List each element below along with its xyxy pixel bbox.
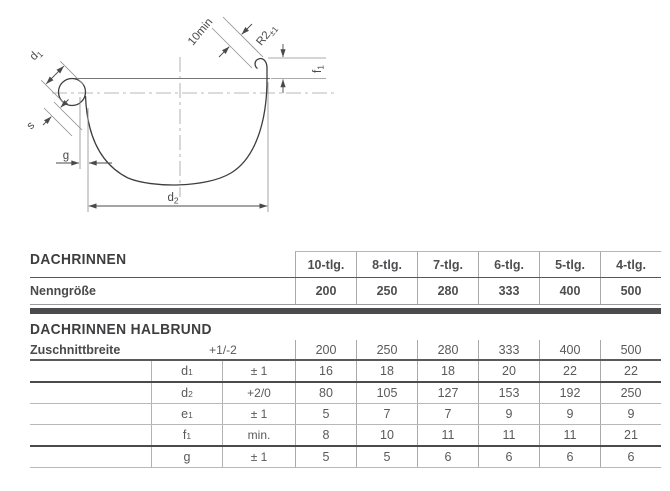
value-cell: 192 xyxy=(539,383,600,403)
table-row-g: g ± 1 5 5 6 6 6 6 xyxy=(30,447,661,468)
diagram-label-s: s xyxy=(25,119,38,132)
value-cell: 5 xyxy=(295,447,356,467)
value-cell: 8 xyxy=(295,425,356,445)
gutter-front-hook xyxy=(255,59,267,79)
value-cell: 20 xyxy=(478,361,539,381)
diagram-label-10min: 10min xyxy=(186,16,215,48)
diagram-label-d2: d2 xyxy=(167,192,178,206)
value-cell: 200 xyxy=(295,340,356,359)
dim-arrow-d1 xyxy=(46,75,55,84)
column-header: 10-tlg. xyxy=(295,251,356,277)
section-title-halbrund: DACHRINNEN HALBRUND xyxy=(30,321,212,338)
symbol-cell: d1 xyxy=(151,361,222,381)
gutter-trough-outline xyxy=(86,79,268,185)
diagram-label-r2: R2±1 xyxy=(254,22,280,49)
column-header: 4-tlg. xyxy=(600,251,661,277)
value-cell: 22 xyxy=(600,361,661,381)
value-cell: 250 xyxy=(600,383,661,403)
value-cell: 11 xyxy=(417,425,478,445)
value-cell: 7 xyxy=(356,404,417,424)
value-cell: 80 xyxy=(295,383,356,403)
value-cell: 280 xyxy=(417,340,478,359)
value-cell: 400 xyxy=(539,340,600,359)
section-divider-bar xyxy=(30,308,661,314)
value-cell: 5 xyxy=(295,404,356,424)
value-cell: 21 xyxy=(600,425,661,445)
dim-arrow-10min xyxy=(242,24,252,34)
table-row-e1: e1 ± 1 5 7 7 9 9 9 xyxy=(30,404,661,425)
value-cell: 6 xyxy=(478,447,539,467)
value-cell: 6 xyxy=(539,447,600,467)
symbol-cell: f1 xyxy=(151,425,222,445)
table-row-d2: d2 +2/0 80 105 127 153 192 250 xyxy=(30,383,661,404)
column-header: 6-tlg. xyxy=(478,251,539,277)
value-cell: 153 xyxy=(478,383,539,403)
dim-arrow-d1 xyxy=(55,66,64,75)
column-header: 8-tlg. xyxy=(356,251,417,277)
symbol-cell: d2 xyxy=(151,383,222,403)
tolerance-cell: ± 1 xyxy=(222,361,295,381)
value-cell: 5 xyxy=(356,447,417,467)
diagram-label-g: g xyxy=(63,150,69,162)
value-cell: 9 xyxy=(600,404,661,424)
extension-line xyxy=(212,28,252,68)
value-cell: 500 xyxy=(600,340,661,359)
value-cell: 280 xyxy=(417,278,478,304)
value-cell: 250 xyxy=(356,340,417,359)
datasheet-page: d1 s g d2 10min R2±1 f1 DACHRINNEN 10-tl… xyxy=(0,0,670,491)
value-cell: 400 xyxy=(539,278,600,304)
table-row-zuschnittbreite: Zuschnittbreite +1/-2 200 250 280 333 40… xyxy=(30,340,661,361)
value-cell: 10 xyxy=(356,425,417,445)
value-cell: 333 xyxy=(478,278,539,304)
value-cell: 7 xyxy=(417,404,478,424)
value-cell: 9 xyxy=(478,404,539,424)
value-cell: 18 xyxy=(417,361,478,381)
section-title-dachrinnen: DACHRINNEN xyxy=(30,251,126,268)
nominal-size-row: Nenngröße 200 250 280 333 400 500 xyxy=(30,278,661,305)
tolerance-cell: +2/0 xyxy=(222,383,295,403)
value-cell: 250 xyxy=(356,278,417,304)
extension-line xyxy=(44,108,72,136)
value-cell: 6 xyxy=(417,447,478,467)
row-label: Zuschnittbreite xyxy=(30,340,151,359)
value-cell: 6 xyxy=(600,447,661,467)
dimension-table: DACHRINNEN 10-tlg. 8-tlg. 7-tlg. 6-tlg. … xyxy=(30,251,661,468)
value-cell: 11 xyxy=(478,425,539,445)
value-cell: 333 xyxy=(478,340,539,359)
table-row-f1: f1 min. 8 10 11 11 11 21 xyxy=(30,425,661,447)
symbol-cell: g xyxy=(151,447,222,467)
value-cell: 500 xyxy=(600,278,661,304)
diagram-label-f1: f1 xyxy=(312,65,326,73)
column-header: 7-tlg. xyxy=(417,251,478,277)
tolerance-cell: min. xyxy=(222,425,295,445)
diagram-label-d1: d1 xyxy=(28,47,46,65)
table-row-d1: d1 ± 1 16 18 18 20 22 22 xyxy=(30,361,661,383)
value-cell: 127 xyxy=(417,383,478,403)
row-label-nenngroesse: Nenngröße xyxy=(30,278,295,304)
symbol-cell: e1 xyxy=(151,404,222,424)
extension-line xyxy=(54,102,82,130)
value-cell: 18 xyxy=(356,361,417,381)
tolerance-cell: ± 1 xyxy=(222,447,295,467)
value-cell: 105 xyxy=(356,383,417,403)
gutter-cross-section-diagram: d1 s g d2 10min R2±1 f1 xyxy=(0,0,670,245)
dim-arrow-s xyxy=(43,117,51,125)
column-header-row: DACHRINNEN 10-tlg. 8-tlg. 7-tlg. 6-tlg. … xyxy=(30,251,661,278)
value-cell: 200 xyxy=(295,278,356,304)
value-cell: 22 xyxy=(539,361,600,381)
value-cell: 9 xyxy=(539,404,600,424)
tolerance-cell: +1/-2 xyxy=(151,340,295,359)
tolerance-cell: ± 1 xyxy=(222,404,295,424)
dim-arrow-10min xyxy=(219,47,229,57)
value-cell: 11 xyxy=(539,425,600,445)
column-header: 5-tlg. xyxy=(539,251,600,277)
value-cell: 16 xyxy=(295,361,356,381)
